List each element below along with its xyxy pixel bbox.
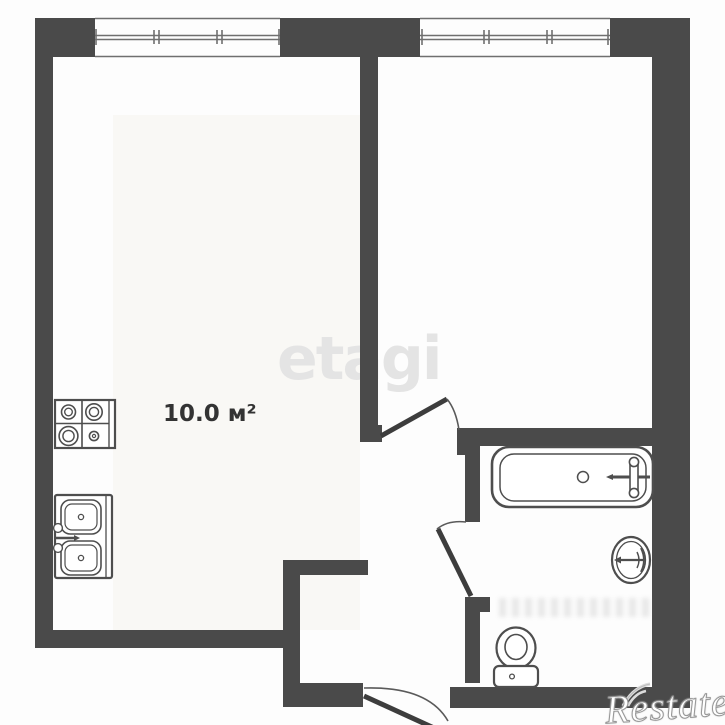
wall-bathroom-left-lower — [465, 597, 480, 683]
window-mullion-ticks — [484, 30, 552, 44]
kitchen-sink-icon — [54, 495, 112, 578]
wall-bedroom-bathroom — [457, 428, 652, 446]
wall-hallway-top — [283, 560, 368, 575]
wall-hallway-left — [283, 560, 300, 683]
wash-basin-icon — [612, 537, 650, 583]
stove-icon — [55, 400, 115, 448]
wall-interior-vertical — [360, 57, 378, 442]
wall-bottom-living — [35, 630, 283, 648]
wall-top-middle — [280, 18, 420, 57]
faint-watermark-strip — [499, 598, 651, 617]
bedroom-door — [381, 399, 459, 436]
toilet-icon — [494, 628, 538, 688]
wall-interior-foot — [360, 425, 382, 442]
entrance-door — [364, 688, 448, 725]
corner-watermark: Restate — [604, 682, 725, 725]
wall-bathroom-left-upper — [465, 446, 480, 522]
window-mullion-ticks — [154, 30, 222, 44]
window-right — [420, 19, 610, 57]
floor-plan: etagi — [0, 0, 725, 725]
window-left — [95, 19, 280, 57]
room-area-label: 10.0 м² — [163, 401, 257, 427]
bathroom-door — [437, 522, 471, 596]
wall-left — [35, 18, 53, 648]
wall-right — [652, 18, 690, 708]
wall-hallway-bottom — [283, 683, 363, 707]
bathtub-icon — [492, 447, 653, 507]
